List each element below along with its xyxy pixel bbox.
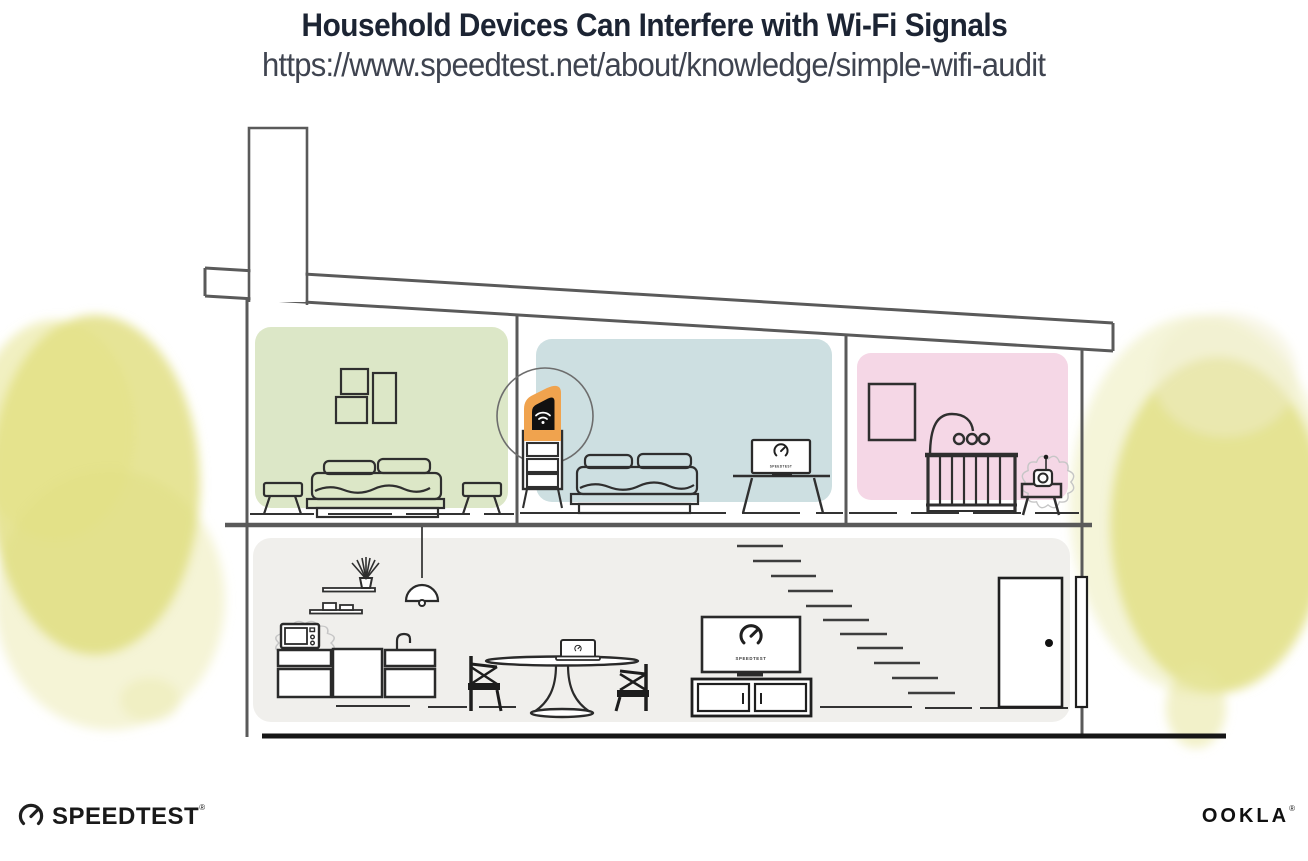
ookla-wordmark: OOKLA xyxy=(1202,805,1289,827)
room-bedroom-green xyxy=(255,327,508,508)
bedroom-tv: SPEEDTEST xyxy=(752,440,810,477)
doorknob xyxy=(1045,639,1053,647)
chimney xyxy=(249,128,307,305)
speedtest-gauge-icon xyxy=(20,805,41,823)
room-bedroom-blue xyxy=(536,339,832,502)
wifi-router-unit xyxy=(523,386,562,508)
bedroom-tv-screen-label: SPEEDTEST xyxy=(770,465,793,469)
laptop xyxy=(556,640,600,660)
router-orange-strip xyxy=(525,433,560,441)
living-room-tv: SPEEDTEST xyxy=(702,617,800,677)
front-door xyxy=(999,578,1062,707)
speedtest-logo: SPEEDTEST® xyxy=(52,803,205,831)
speedtest-wordmark: SPEEDTEST xyxy=(52,803,199,831)
ookla-registered-mark: ® xyxy=(1289,804,1298,813)
kitchen-cabinets xyxy=(278,649,435,697)
foliage-right xyxy=(1070,313,1308,748)
ookla-logo: OOKLA® xyxy=(1202,804,1298,828)
house-illustration: SPEEDTEST xyxy=(0,0,1308,861)
microwave xyxy=(281,624,319,648)
speedtest-registered-mark: ® xyxy=(199,803,205,813)
foliage-left xyxy=(0,315,225,730)
living-room-tv-screen-label: SPEEDTEST xyxy=(736,656,767,661)
door-sidelight xyxy=(1076,577,1087,707)
media-console xyxy=(692,679,811,716)
